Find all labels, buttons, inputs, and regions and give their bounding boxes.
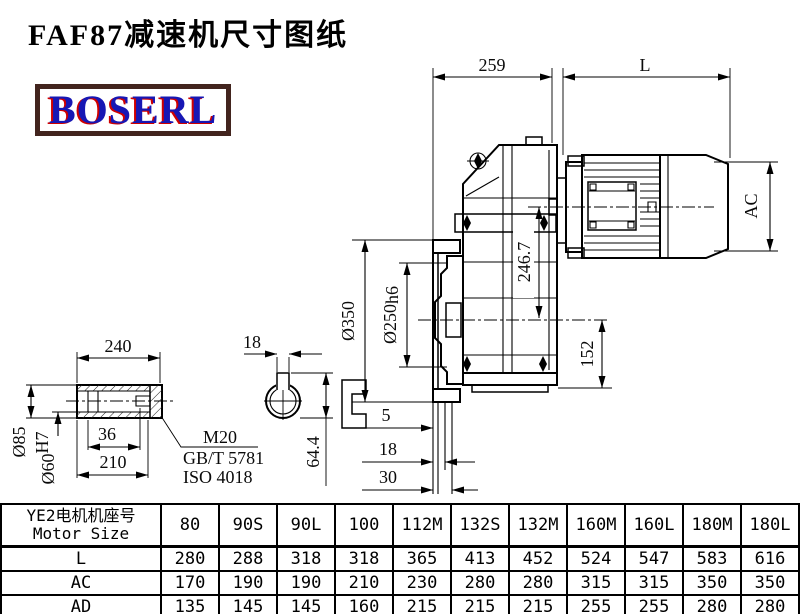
table-cell: 318 — [277, 547, 335, 572]
drawing-sheet: FAF87减速机尺寸图纸 BOSERL — [0, 0, 800, 614]
gearbox-housing — [455, 137, 557, 392]
table-cell: 315 — [567, 571, 625, 595]
shaft-section-view — [264, 372, 302, 420]
dim-64-4-label: 64.4 — [303, 436, 323, 468]
table-col-header: 132S — [451, 504, 509, 547]
table-cell: 145 — [277, 595, 335, 614]
table-row-L: L 280 288 318 318 365 413 452 524 547 58… — [1, 547, 799, 572]
table-header-en: Motor Size — [2, 525, 160, 543]
table-cell: 280 — [451, 571, 509, 595]
dim-250h6-label: Ø250h6 — [380, 286, 402, 344]
table-row-label: AD — [1, 595, 161, 614]
table-col-header: 90L — [277, 504, 335, 547]
dim-AC: AC — [714, 162, 778, 251]
table-row-AC: AC 170 190 190 210 230 280 280 315 315 3… — [1, 571, 799, 595]
dim-210-label: 210 — [100, 452, 127, 472]
table-cell: 215 — [451, 595, 509, 614]
dim-5: 5 — [362, 405, 433, 428]
dim-18-label: 18 — [379, 439, 397, 459]
table-header-cn: YE2电机机座号 — [2, 507, 160, 525]
dim-152: 152 — [558, 320, 612, 388]
table-cell: 215 — [393, 595, 451, 614]
dim-36-label: 36 — [98, 424, 116, 444]
table-cell: 230 — [393, 571, 451, 595]
table-cell: 288 — [219, 547, 277, 572]
table-cell: 365 — [393, 547, 451, 572]
table-cell: 215 — [509, 595, 567, 614]
motor-size-table: YE2电机机座号 Motor Size 80 90S 90L 100 112M … — [0, 503, 800, 614]
table-cell: 210 — [335, 571, 393, 595]
thread-callout-iso: ISO 4018 — [183, 467, 253, 487]
table-cell: 135 — [161, 595, 219, 614]
dim-240: 240 — [77, 336, 160, 383]
table-col-header: 90S — [219, 504, 277, 547]
table-cell: 315 — [625, 571, 683, 595]
table-col-header: 100 — [335, 504, 393, 547]
dim-259: 259 — [433, 55, 552, 240]
thread-callout: M20 GB/T 5781 ISO 4018 — [161, 416, 264, 487]
dim-60H7-label: Ø60H7 — [32, 432, 58, 485]
table-col-header: 160L — [625, 504, 683, 547]
table-cell: 413 — [451, 547, 509, 572]
dim-152-label: 152 — [577, 341, 597, 368]
table-cell: 170 — [161, 571, 219, 595]
thread-callout-m20: M20 — [203, 427, 237, 447]
table-cell: 145 — [219, 595, 277, 614]
dim-85-label: Ø85 — [9, 427, 29, 458]
motor-nameplate — [588, 182, 636, 230]
dim-60H7: Ø60H7 — [32, 412, 77, 485]
dim-L: L — [563, 55, 730, 158]
dim-18: 18 — [362, 439, 475, 462]
table-col-header: 132M — [509, 504, 567, 547]
thread-callout-gbt: GB/T 5781 — [183, 448, 264, 468]
table-col-header: 80 — [161, 504, 219, 547]
table-cell: 350 — [741, 571, 799, 595]
table-row-label: AC — [1, 571, 161, 595]
table-cell: 350 — [683, 571, 741, 595]
dim-250h6: Ø250h6 — [380, 263, 447, 367]
dim-30-label: 30 — [379, 467, 397, 487]
dim-246-7-label: 246.7 — [514, 242, 534, 283]
table-cell: 280 — [509, 571, 567, 595]
dim-259-label: 259 — [479, 55, 506, 75]
table-cell: 547 — [625, 547, 683, 572]
table-cell: 190 — [219, 571, 277, 595]
table-cell: 160 — [335, 595, 393, 614]
table-cell: 280 — [161, 547, 219, 572]
table-row-AD: AD 135 145 145 160 215 215 215 255 255 2… — [1, 595, 799, 614]
mounting-bracket — [342, 380, 366, 428]
table-col-header: 112M — [393, 504, 451, 547]
table-header-motor-size: YE2电机机座号 Motor Size — [1, 504, 161, 547]
dim-64-4: 64.4 — [291, 373, 333, 486]
dim-5-label: 5 — [382, 405, 391, 425]
table-col-header: 160M — [567, 504, 625, 547]
table-col-header: 180M — [683, 504, 741, 547]
hollow-shaft-view — [66, 385, 174, 418]
dim-AC-label: AC — [741, 193, 761, 218]
table-cell: 190 — [277, 571, 335, 595]
table-cell: 583 — [683, 547, 741, 572]
table-header-row: YE2电机机座号 Motor Size 80 90S 90L 100 112M … — [1, 504, 799, 547]
dim-L-label: L — [640, 55, 651, 75]
flange-edge-lines — [433, 402, 452, 494]
table-cell: 255 — [567, 595, 625, 614]
dim-18-keyway: 18 — [243, 332, 322, 372]
table-cell: 255 — [625, 595, 683, 614]
dim-18-keyway-label: 18 — [243, 332, 261, 352]
table-cell: 280 — [683, 595, 741, 614]
dim-30: 30 — [362, 467, 478, 490]
table-col-header: 180L — [741, 504, 799, 547]
table-cell: 524 — [567, 547, 625, 572]
table-row-label: L — [1, 547, 161, 572]
table-cell: 616 — [741, 547, 799, 572]
table-cell: 452 — [509, 547, 567, 572]
motor-fins — [584, 163, 660, 250]
table-cell: 280 — [741, 595, 799, 614]
dim-240-label: 240 — [105, 336, 132, 356]
dim-350-label: Ø350 — [338, 301, 358, 341]
table-cell: 318 — [335, 547, 393, 572]
